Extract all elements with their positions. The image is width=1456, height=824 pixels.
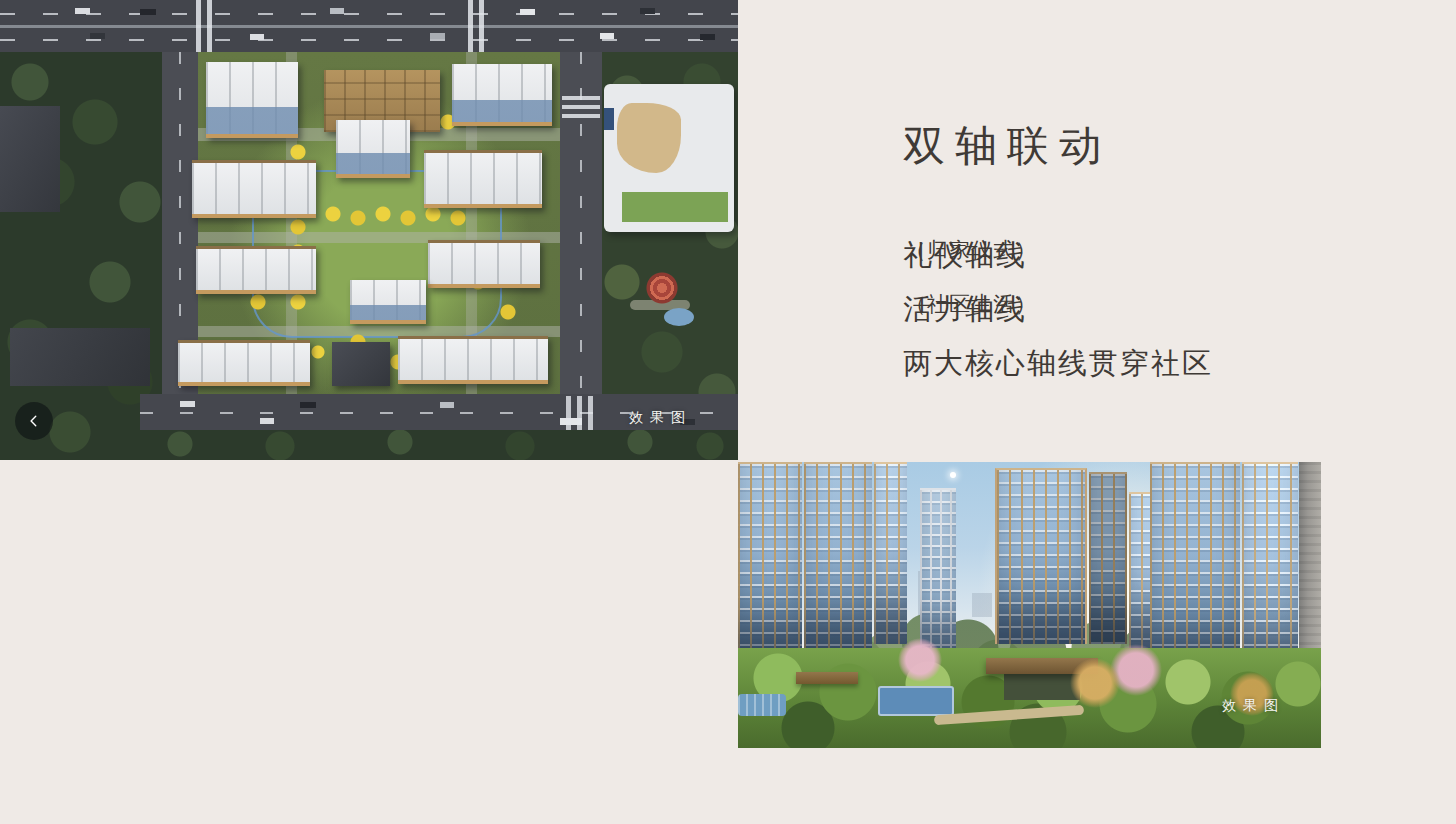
blossom-tree [898, 638, 942, 682]
entrance-gate-building [332, 342, 390, 386]
autumn-tree [1070, 658, 1120, 708]
tower [738, 462, 802, 658]
aerial-rendering-image: 效果图 [0, 0, 738, 460]
crosswalk [562, 96, 600, 118]
courtyard-rendering-image: 效果图 [738, 462, 1321, 748]
slide-text-block: 双轴联动 礼仪轴线（归家仪式） 活力轴线（社区生活） 两大核心轴线贯穿社区 [903, 0, 1456, 460]
tower [1089, 472, 1127, 644]
park-pond [664, 308, 694, 326]
neighbor-building-roof [10, 328, 150, 386]
tower [874, 462, 907, 644]
axis-line-main: 两大核心轴线贯穿社区 [903, 344, 1213, 384]
school-lawn [622, 192, 728, 222]
pool [738, 694, 786, 716]
traffic-layer [0, 0, 738, 52]
tower [804, 462, 872, 654]
carousel-prev-button[interactable] [15, 402, 53, 440]
tower [1150, 462, 1240, 668]
chevron-left-icon [27, 414, 41, 428]
neighbor-building-roof [0, 106, 60, 212]
building [350, 280, 426, 324]
building [452, 64, 552, 126]
building [192, 160, 316, 218]
school-roof-panel [604, 108, 614, 130]
axis-line-note: （社区生活） [905, 290, 1037, 318]
garden-canopy [796, 672, 858, 684]
playground-circle [646, 272, 678, 304]
building [206, 62, 298, 138]
school-courtyard [617, 103, 681, 173]
building [424, 150, 542, 208]
building [428, 240, 540, 288]
tree-area-bottom [140, 430, 738, 460]
watermark-label: 效果图 [629, 409, 692, 427]
page: 效果图 双轴联动 礼仪轴线（归家仪式） 活力轴线（社区生活） 两大核心轴线贯穿社… [0, 0, 1456, 824]
tower [920, 488, 956, 654]
building [336, 120, 410, 178]
building [398, 336, 548, 384]
pavilion-base [1004, 672, 1080, 700]
crosswalk [566, 396, 596, 430]
building [196, 246, 316, 294]
tower-central [995, 468, 1087, 644]
tower [1242, 462, 1298, 674]
building [178, 340, 310, 386]
axis-line-note: （归家仪式） [905, 236, 1037, 264]
watermark-label: 效果图 [1222, 697, 1285, 715]
sun-icon [950, 472, 956, 478]
play-court [878, 686, 954, 716]
school-building [604, 84, 734, 232]
slide-title: 双轴联动 [903, 118, 1111, 174]
